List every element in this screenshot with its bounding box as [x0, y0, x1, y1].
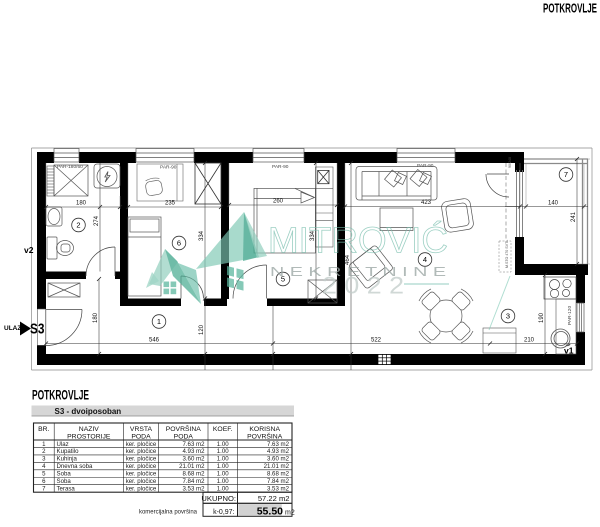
svg-text:2: 2 [76, 221, 80, 230]
svg-text:Dnevna soba: Dnevna soba [57, 463, 94, 470]
svg-text:M.STO 470 SVTL: M.STO 470 SVTL [505, 240, 509, 268]
svg-text:ker. pločice: ker. pločice [126, 441, 157, 448]
svg-text:KORISNA: KORISNA [249, 426, 280, 433]
svg-text:241: 241 [571, 211, 577, 222]
svg-text:m2: m2 [285, 509, 295, 516]
svg-text:NAZIV: NAZIV [79, 426, 99, 433]
svg-text:1.00: 1.00 [217, 471, 229, 478]
svg-text:BR.: BR. [38, 426, 49, 433]
svg-text:1.00: 1.00 [217, 463, 229, 470]
svg-text:4.93 m2: 4.93 m2 [267, 448, 290, 455]
svg-text:komercijalna površina: komercijalna površina [139, 509, 198, 515]
svg-text:21.01 m2: 21.01 m2 [264, 463, 290, 470]
svg-text:235: 235 [165, 201, 176, 207]
svg-text:PODA: PODA [131, 434, 151, 441]
svg-text:POTKROVLJE: POTKROVLJE [543, 1, 597, 16]
svg-text:MITROVIĆ: MITROVIĆ [268, 220, 448, 261]
svg-text:423: 423 [421, 200, 432, 206]
svg-text:POVRŠINA: POVRŠINA [166, 424, 202, 433]
svg-text:140: 140 [548, 201, 559, 207]
svg-text:Kupatilo: Kupatilo [57, 448, 80, 455]
svg-text:POVRŠINA: POVRŠINA [247, 432, 283, 441]
svg-text:ULAZ: ULAZ [4, 325, 21, 332]
svg-text:210: 210 [524, 338, 535, 344]
svg-text:180: 180 [93, 312, 99, 323]
svg-text:190: 190 [539, 312, 545, 323]
svg-text:1.00: 1.00 [217, 478, 229, 485]
svg-text:2 0 2 2: 2 0 2 2 [322, 273, 404, 300]
svg-text:PAR-90: PAR-90 [160, 165, 177, 171]
svg-text:7.63 m2: 7.63 m2 [267, 441, 290, 448]
svg-text:3: 3 [506, 312, 510, 321]
svg-text:1.00: 1.00 [217, 448, 229, 455]
svg-text:1.00: 1.00 [217, 486, 229, 493]
svg-text:334: 334 [199, 230, 205, 241]
svg-text:ker. pločice: ker. pločice [126, 478, 157, 485]
svg-text:7.84 m2: 7.84 m2 [267, 478, 290, 485]
svg-text:8.68 m2: 8.68 m2 [267, 471, 290, 478]
svg-text:v2: v2 [24, 245, 34, 255]
svg-text:7.84 m2: 7.84 m2 [182, 478, 205, 485]
svg-text:k-0,97:: k-0,97: [213, 509, 234, 516]
svg-text:ker. pločice: ker. pločice [126, 448, 157, 455]
svg-text:PAR-120: PAR-120 [567, 306, 573, 325]
svg-text:UKUPNO:: UKUPNO: [201, 494, 236, 503]
svg-text:4.93 m2: 4.93 m2 [182, 448, 205, 455]
svg-text:522: 522 [371, 338, 382, 344]
svg-text:Soba: Soba [57, 471, 72, 478]
svg-text:7: 7 [564, 170, 568, 179]
svg-text:S3 - dvoiposoban: S3 - dvoiposoban [55, 407, 122, 416]
svg-text:Ulaz: Ulaz [57, 441, 69, 448]
svg-text:3.53 m2: 3.53 m2 [182, 486, 205, 493]
svg-text:260: 260 [273, 199, 284, 205]
svg-text:ker. pločice: ker. pločice [126, 471, 157, 478]
svg-text:546: 546 [149, 338, 160, 344]
svg-text:ker. pločice: ker. pločice [126, 486, 157, 493]
svg-text:PODA: PODA [174, 434, 194, 441]
svg-text:7.63 m2: 7.63 m2 [182, 441, 205, 448]
svg-text:1.00: 1.00 [217, 456, 229, 463]
svg-text:120: 120 [199, 324, 205, 335]
svg-text:55.50: 55.50 [257, 505, 283, 517]
svg-text:57.22 m2: 57.22 m2 [258, 494, 290, 503]
svg-text:3.53 m2: 3.53 m2 [267, 486, 290, 493]
svg-text:6: 6 [177, 239, 181, 248]
svg-text:21.01 m2: 21.01 m2 [179, 463, 205, 470]
svg-text:ker. pločice: ker. pločice [126, 456, 157, 463]
svg-text:Kuhinja: Kuhinja [57, 456, 78, 463]
svg-text:274: 274 [94, 215, 100, 226]
svg-text:KOEF.: KOEF. [213, 426, 233, 433]
svg-text:180: 180 [76, 201, 87, 207]
svg-text:ker. pločice: ker. pločice [126, 463, 157, 470]
svg-text:Terasa: Terasa [57, 486, 76, 493]
svg-text:90/240: 90/240 [508, 157, 512, 168]
svg-text:PAR-90: PAR-90 [417, 163, 434, 169]
svg-text:1.00: 1.00 [217, 441, 229, 448]
svg-text:PAR-90: PAR-90 [272, 164, 289, 170]
svg-text:VRSTA: VRSTA [130, 426, 153, 433]
svg-text:3.60 m2: 3.60 m2 [267, 456, 290, 463]
svg-text:1: 1 [157, 317, 161, 326]
svg-text:PROSTORIJE: PROSTORIJE [67, 434, 111, 441]
svg-text:8.68 m2: 8.68 m2 [182, 471, 205, 478]
svg-text:Soba: Soba [57, 478, 72, 485]
svg-text:3.60 m2: 3.60 m2 [182, 456, 205, 463]
svg-text:POTKROVLJE: POTKROVLJE [32, 388, 89, 403]
